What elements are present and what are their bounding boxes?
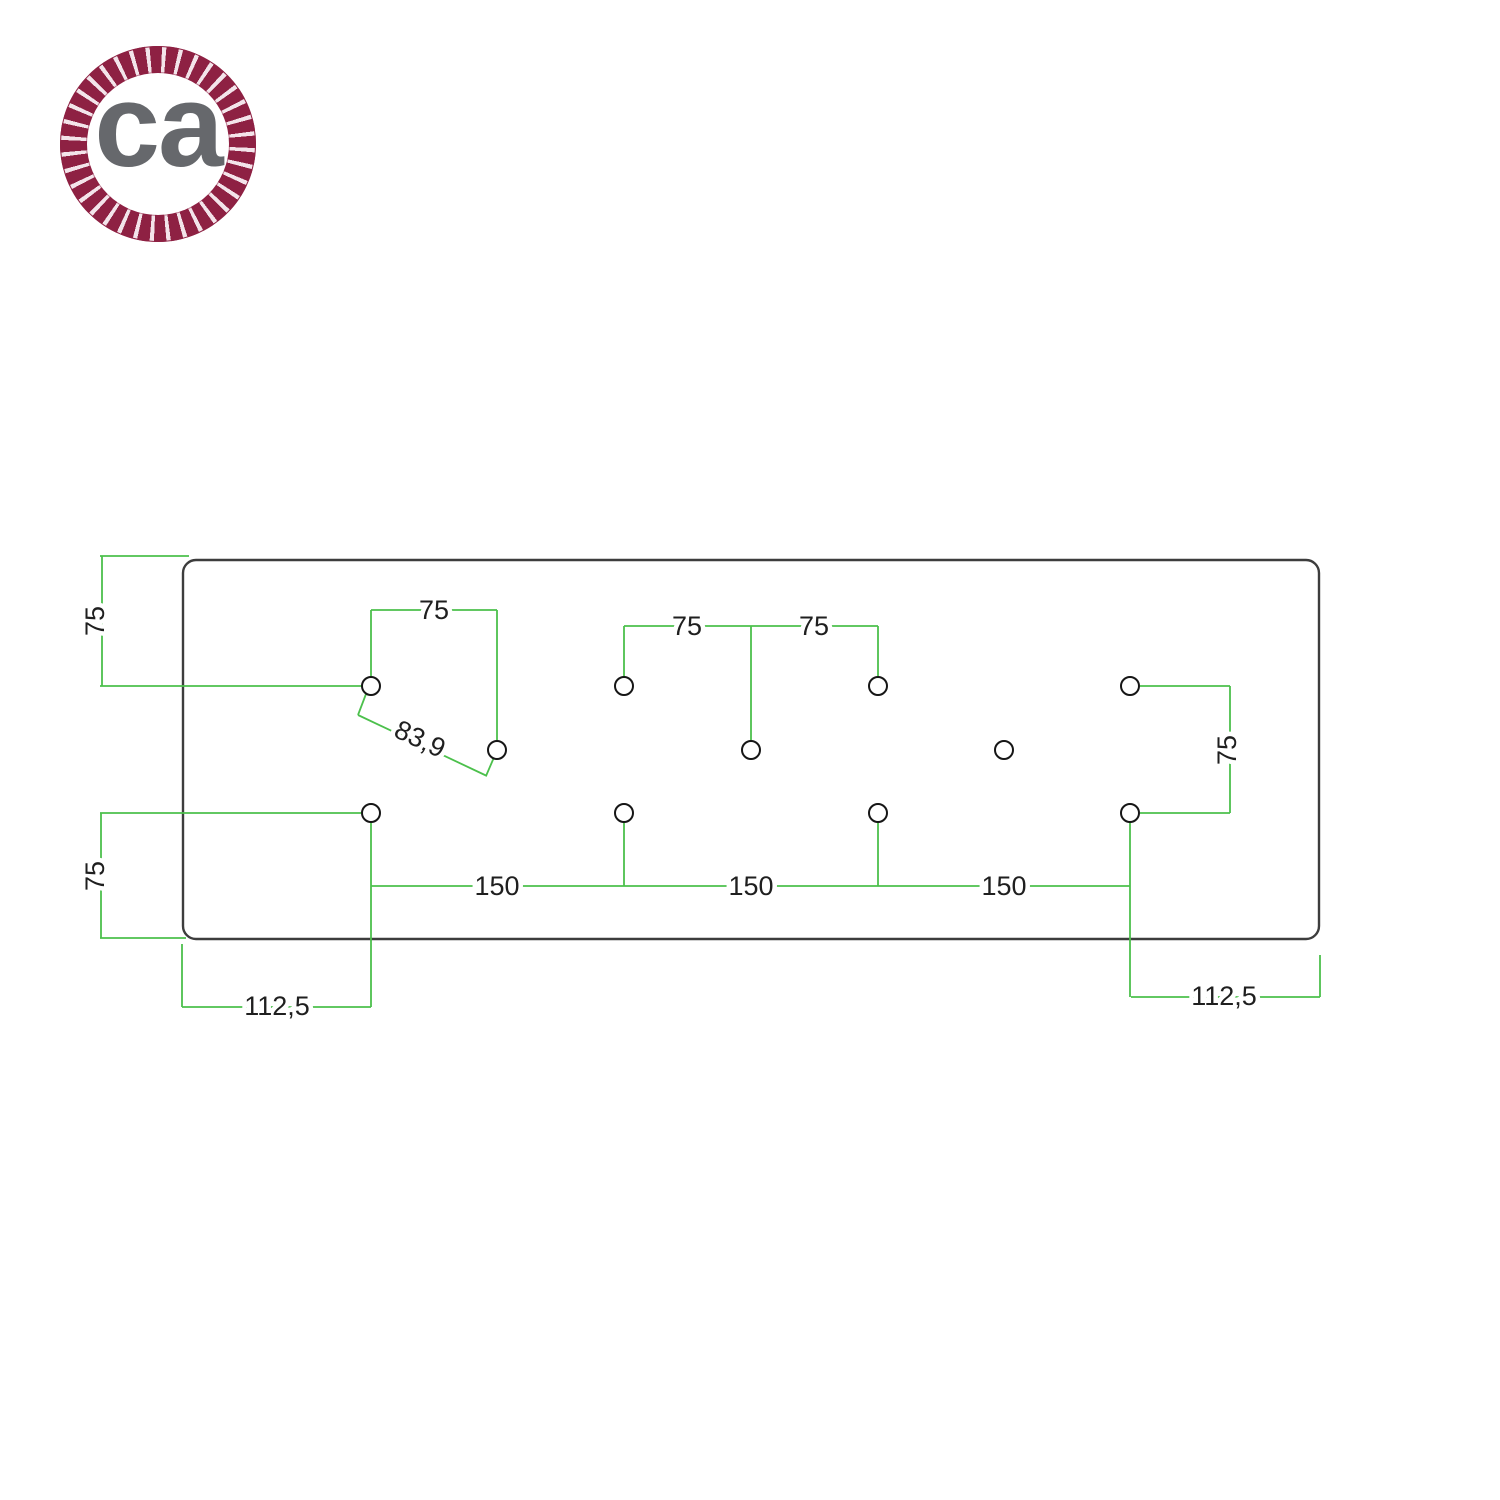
dim-offset-left-112-5: 112,5 — [182, 944, 371, 1021]
hole-top-1 — [362, 677, 380, 695]
dim-label-offset-right: 112,5 — [1191, 981, 1257, 1011]
dim-label-mid-left: 75 — [672, 611, 702, 641]
hole-bottom-4 — [1121, 804, 1139, 822]
dim-label-left-top: 75 — [80, 606, 110, 636]
hole-mid-2 — [742, 741, 760, 759]
dim-label-right-side: 75 — [1212, 735, 1242, 765]
page: ca 75 75 83,9 75 75 75 — [0, 0, 1500, 1500]
dim-label-left-bottom: 75 — [80, 861, 110, 891]
hole-bottom-1 — [362, 804, 380, 822]
hole-bottom-2 — [615, 804, 633, 822]
dim-label-offset-left: 112,5 — [244, 991, 310, 1021]
dim-label-span1: 150 — [474, 871, 519, 901]
dim-label-span3: 150 — [981, 871, 1026, 901]
hole-top-4 — [1121, 677, 1139, 695]
plate-technical-drawing: 75 75 83,9 75 75 75 75 — [0, 0, 1500, 1500]
hole-mid-1 — [488, 741, 506, 759]
hole-mid-3 — [995, 741, 1013, 759]
hole-bottom-3 — [869, 804, 887, 822]
dim-offset-right-112-5: 112,5 — [1131, 955, 1320, 1011]
dim-label-hole1-top: 75 — [419, 595, 449, 625]
dim-label-span2: 150 — [728, 871, 773, 901]
hole-top-3 — [869, 677, 887, 695]
dim-label-mid-right: 75 — [799, 611, 829, 641]
hole-top-2 — [615, 677, 633, 695]
